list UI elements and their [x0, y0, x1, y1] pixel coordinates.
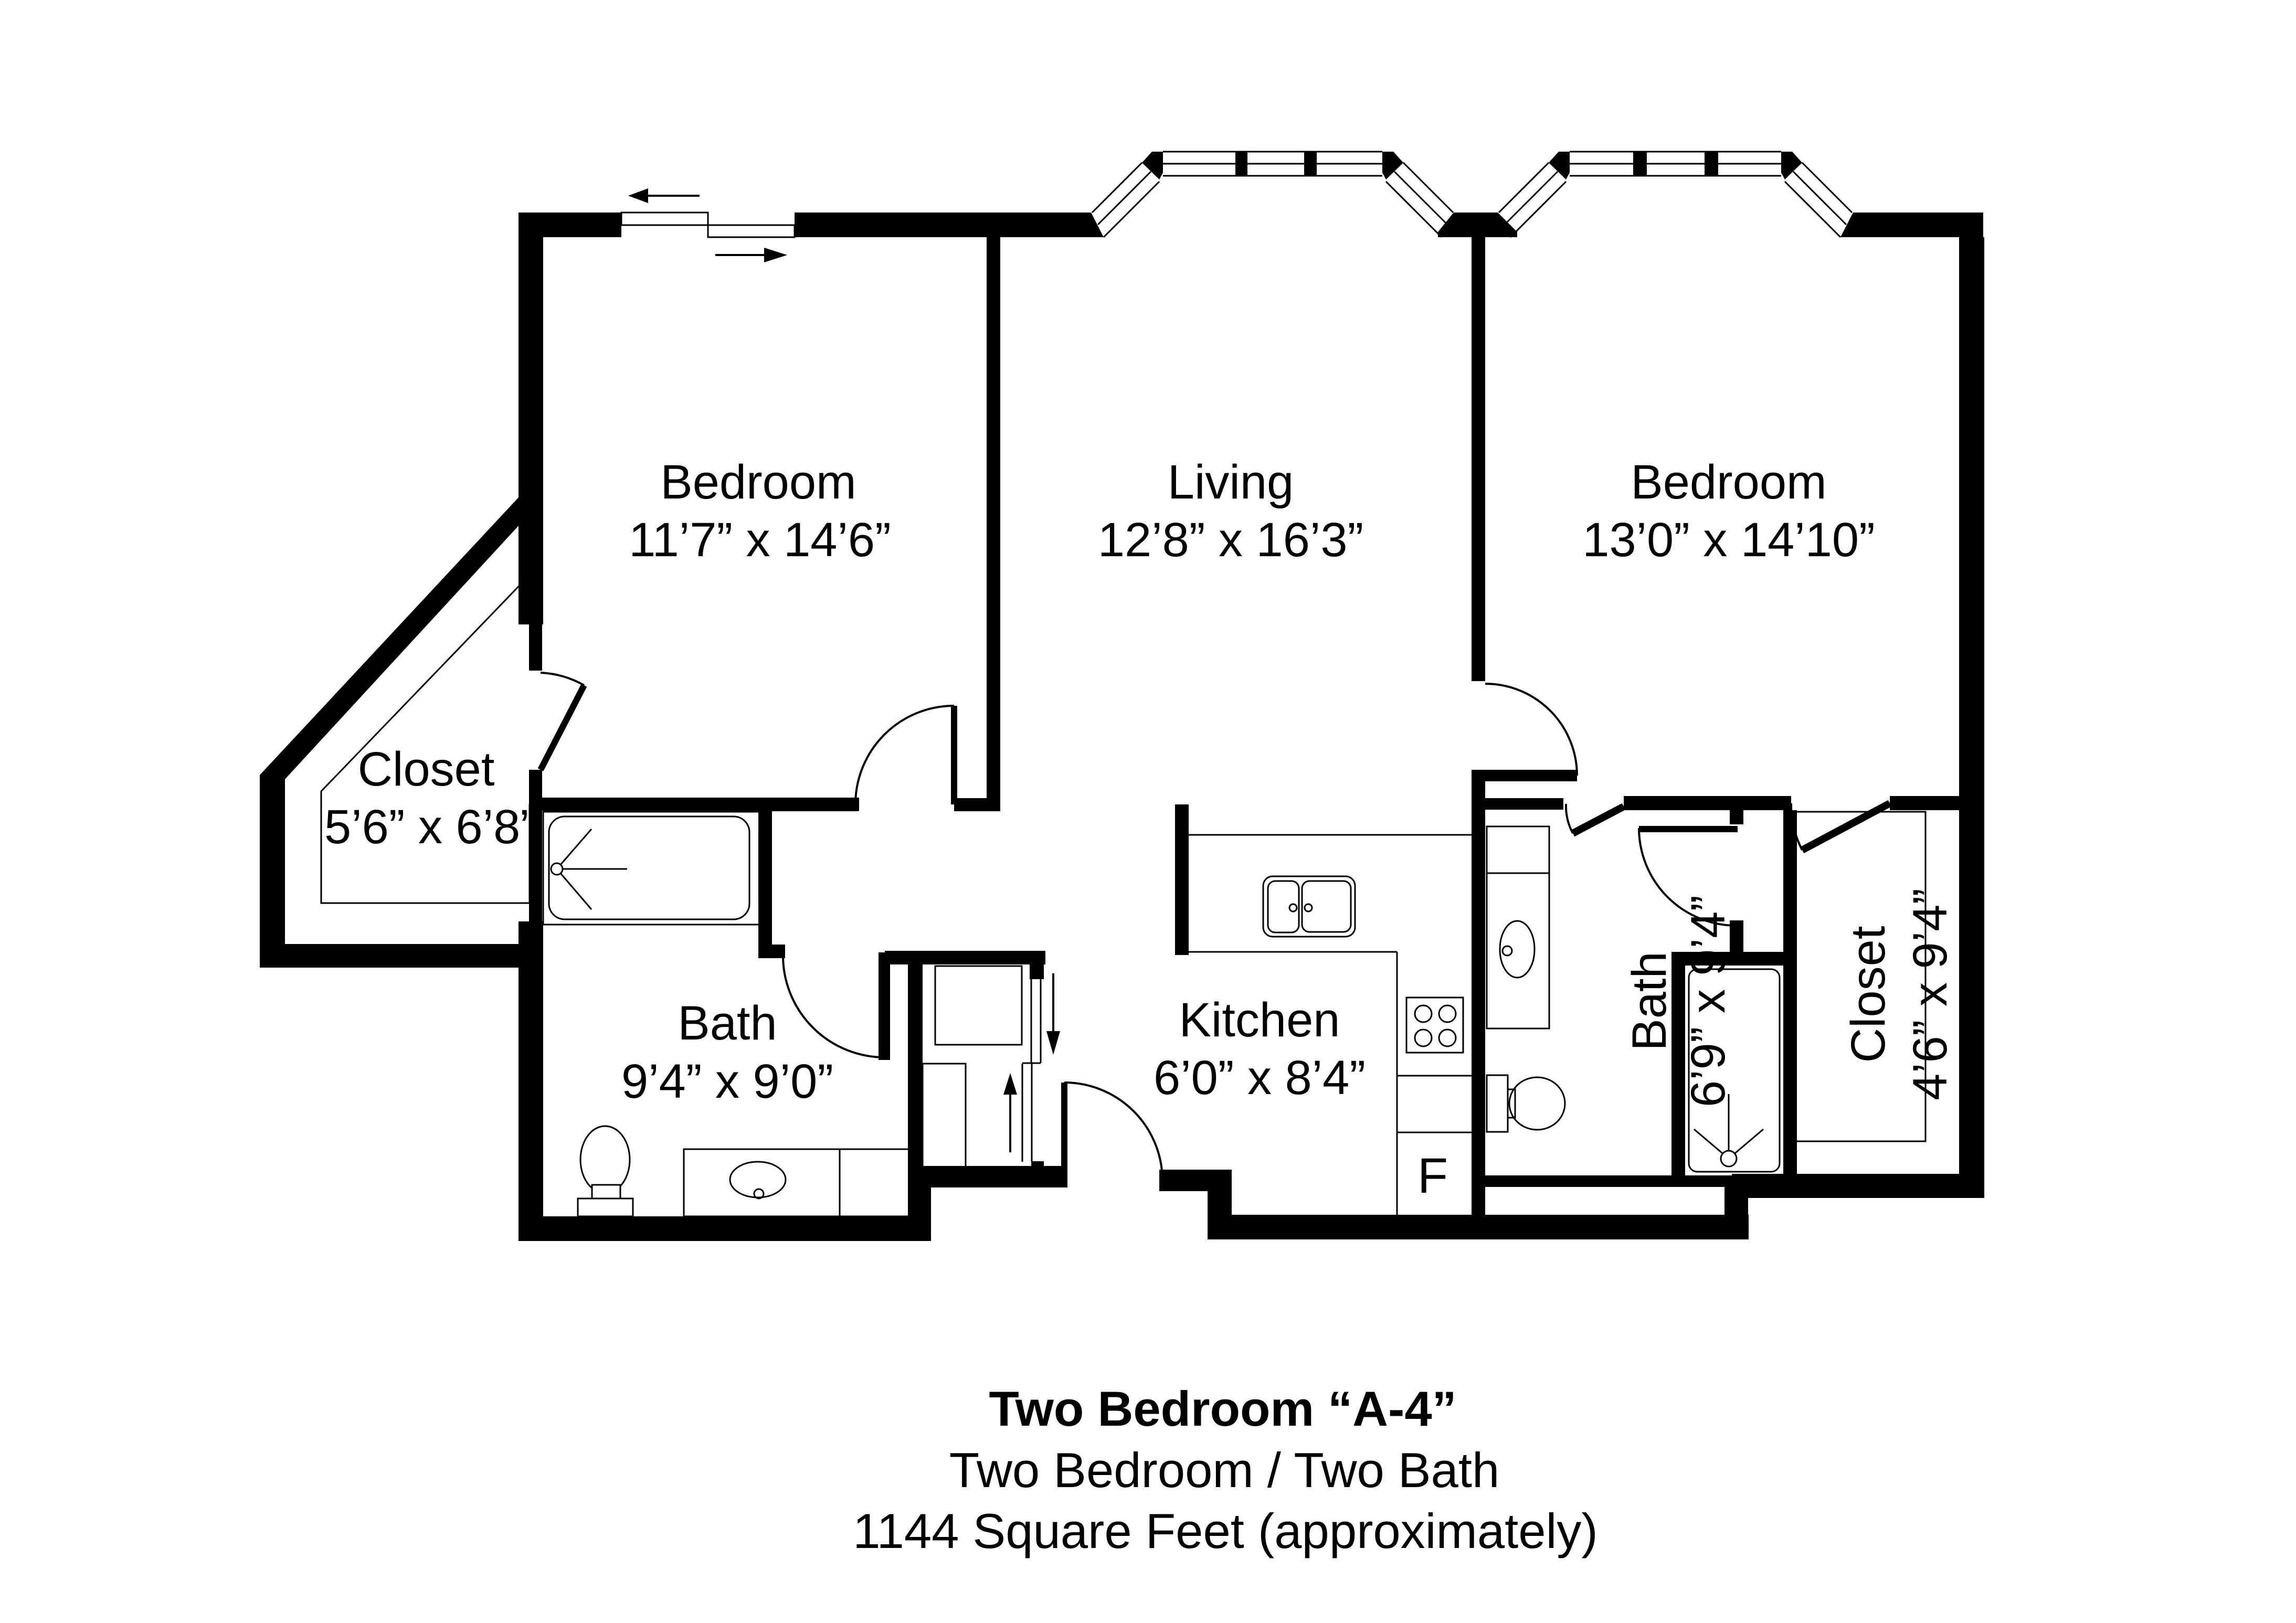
svg-text:6’9” x 9’4”: 6’9” x 9’4” [1681, 895, 1735, 1107]
svg-text:F: F [1417, 1148, 1448, 1204]
svg-text:Two Bedroom / Two Bath: Two Bedroom / Two Bath [949, 1442, 1499, 1498]
svg-text:1144 Square Feet (approximatel: 1144 Square Feet (approximately) [853, 1503, 1597, 1558]
svg-text:Closet: Closet [358, 742, 495, 796]
svg-text:9’4” x 9’0”: 9’4” x 9’0” [621, 1055, 833, 1108]
svg-text:Kitchen: Kitchen [1179, 993, 1340, 1047]
svg-text:Bath: Bath [678, 996, 777, 1050]
svg-text:Bedroom: Bedroom [660, 455, 856, 509]
svg-text:Bedroom: Bedroom [1631, 455, 1826, 509]
svg-text:6’0” x 8’4”: 6’0” x 8’4” [1154, 1051, 1366, 1105]
svg-text:12’8” x 16’3”: 12’8” x 16’3” [1098, 513, 1363, 567]
svg-text:4’6” x 9’4”: 4’6” x 9’4” [1903, 888, 1957, 1100]
svg-text:13’0” x 14’10”: 13’0” x 14’10” [1582, 513, 1875, 567]
svg-text:11’7” x 14’6”: 11’7” x 14’6” [629, 513, 891, 567]
svg-text:Bath: Bath [1623, 951, 1676, 1051]
svg-text:5’6” x 6’8”: 5’6” x 6’8” [324, 800, 536, 854]
svg-text:Closet: Closet [1842, 926, 1895, 1063]
svg-text:Two Bedroom “A-4”: Two Bedroom “A-4” [989, 1381, 1456, 1436]
svg-text:Living: Living [1168, 455, 1294, 509]
